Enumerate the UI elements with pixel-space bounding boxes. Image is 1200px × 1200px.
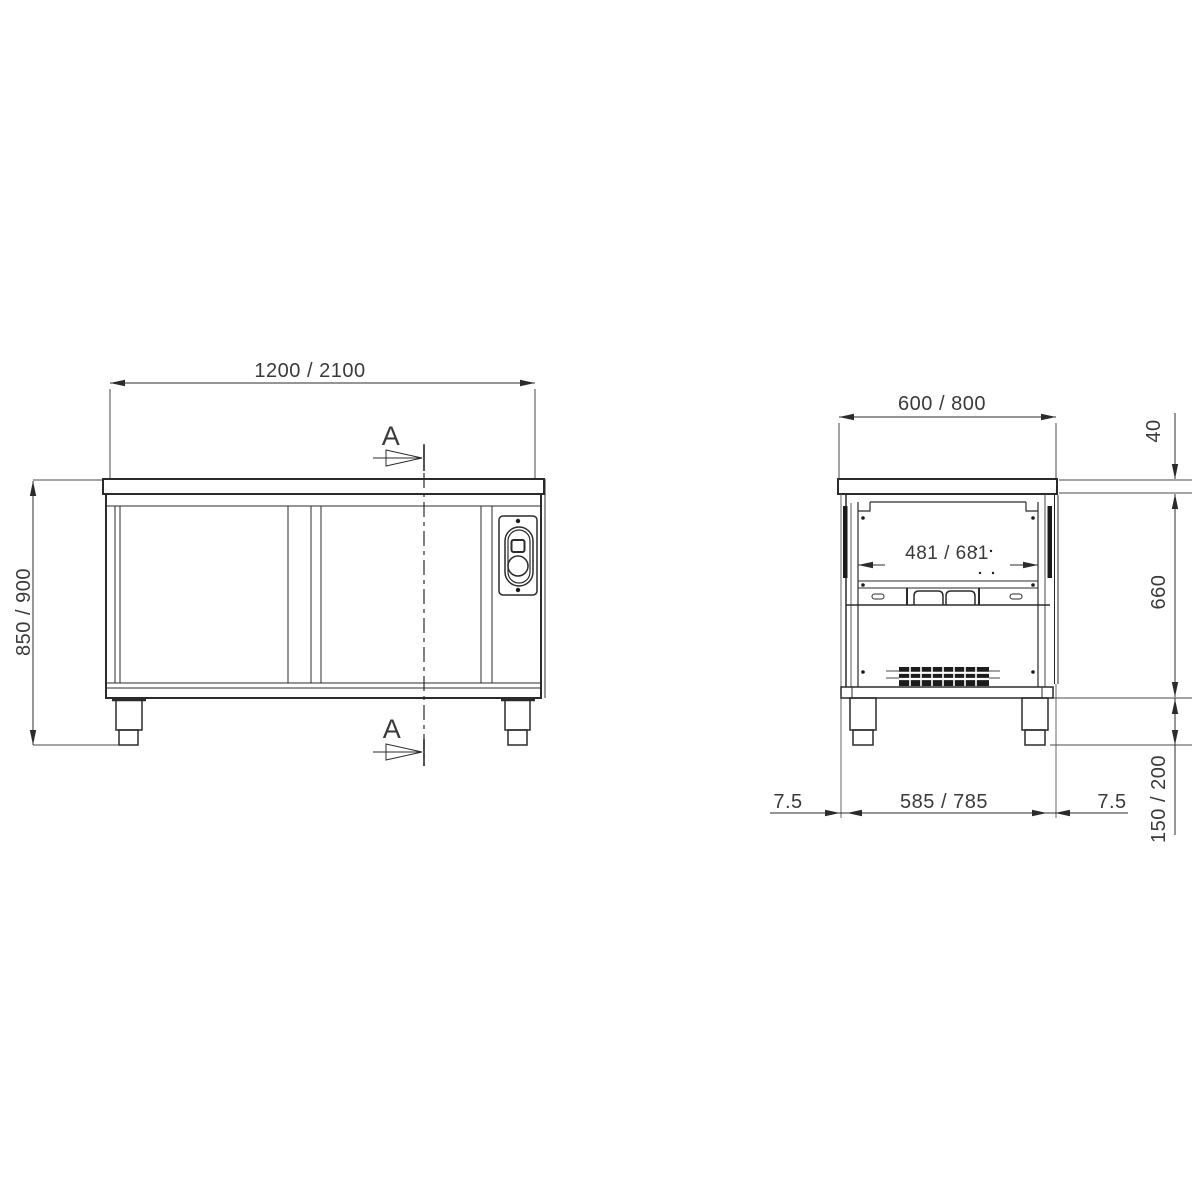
arrowhead (1055, 810, 1070, 816)
technical-drawing-canvas: 1200 / 2100 850 / 900 A (0, 0, 1200, 1200)
wall-screw-dots (861, 516, 1035, 674)
screw-dot (1031, 670, 1035, 674)
panel-screw-bottom (516, 588, 520, 592)
foot-upper (116, 700, 142, 730)
worktop (103, 479, 544, 494)
control-panel (499, 516, 537, 595)
door-track-bracket-left (843, 506, 848, 578)
overhang-right-label: 7.5 (1097, 791, 1126, 813)
thermostat-knob (508, 556, 528, 576)
screw-dot (861, 583, 865, 587)
overhang-left-label: 7.5 (773, 791, 802, 813)
front-width-dimension: 1200 / 2100 (110, 360, 535, 478)
front-feet (112, 700, 535, 745)
interior-depth-label: 481 / 681 (905, 543, 989, 564)
power-switch (512, 540, 525, 552)
panel-screw-top (516, 519, 520, 523)
arrowhead (110, 380, 125, 386)
screw-dot (1031, 583, 1035, 587)
foot-lower (508, 730, 527, 745)
door-track-bracket-right (1048, 506, 1053, 578)
heating-element (886, 667, 1000, 686)
section-label-top: A (382, 421, 401, 451)
door-track-assembly (846, 581, 1050, 605)
arrowhead (847, 810, 862, 816)
foot-height-label: 150 / 200 (1148, 755, 1170, 843)
ceiling-step-left (858, 502, 870, 511)
side-view: 600 / 800 40 660 150 / 200 (770, 393, 1192, 843)
foot-upper (505, 700, 530, 730)
foot-upper (1022, 698, 1048, 730)
arrowhead (839, 414, 854, 420)
speck (990, 550, 992, 552)
side-base (841, 687, 1053, 745)
front-cabinet (103, 479, 545, 698)
arrowhead (1041, 414, 1056, 420)
body-height-label: 660 (1148, 575, 1170, 610)
section-marker-top: A (373, 421, 424, 471)
track-slot (1010, 594, 1022, 599)
front-height-dimension: 850 / 900 (13, 480, 119, 745)
screw-dot (1031, 516, 1035, 520)
worktop-section (838, 479, 1057, 494)
screw-dot (861, 670, 865, 674)
front-view: 1200 / 2100 850 / 900 A (13, 360, 545, 766)
worktop-thickness-label: 40 (1143, 419, 1165, 442)
base-band (841, 687, 1053, 698)
interior-depth-dimension: 481 / 681 (858, 543, 1038, 568)
ceiling-step-right (1026, 502, 1038, 511)
arrowhead (1023, 562, 1038, 568)
foot-lower (1025, 730, 1045, 745)
front-height-dim-label: 850 / 900 (13, 568, 35, 656)
foot-lower (853, 730, 873, 745)
foot-upper (850, 698, 876, 730)
arrowhead (1172, 682, 1178, 697)
section-marker-bottom: A (373, 714, 424, 766)
front-width-dim-label: 1200 / 2100 (254, 360, 365, 382)
arrowhead (1032, 810, 1047, 816)
door-hanger (946, 591, 975, 605)
side-right-dimensions: 40 660 150 / 200 (1050, 413, 1192, 843)
screw-dot (861, 516, 865, 520)
section-cut-line: A A (373, 421, 424, 766)
cabinet-body (106, 494, 541, 698)
base-depth-label: 585 / 785 (900, 791, 988, 813)
interior-ceiling (858, 502, 1038, 511)
arrowhead (1172, 494, 1178, 509)
section-label-bottom: A (383, 714, 402, 744)
side-depth-dimension: 600 / 800 (839, 393, 1056, 478)
arrowhead (30, 481, 36, 496)
arrowhead (1172, 699, 1178, 714)
arrowhead (1172, 464, 1178, 479)
speck (979, 572, 981, 574)
side-bottom-dimensions: 7.5 585 / 785 7.5 (770, 791, 1128, 816)
foot-lower (119, 730, 138, 745)
arrowhead (1172, 730, 1178, 745)
arrowhead (30, 730, 36, 745)
track-slot (872, 594, 884, 599)
technical-drawing: 1200 / 2100 850 / 900 A (0, 0, 1200, 1200)
arrowhead (858, 562, 873, 568)
arrowhead (520, 380, 535, 386)
side-depth-dim-label: 600 / 800 (898, 393, 986, 415)
arrowhead (825, 810, 840, 816)
speck (992, 572, 994, 574)
door-hanger (914, 591, 943, 605)
